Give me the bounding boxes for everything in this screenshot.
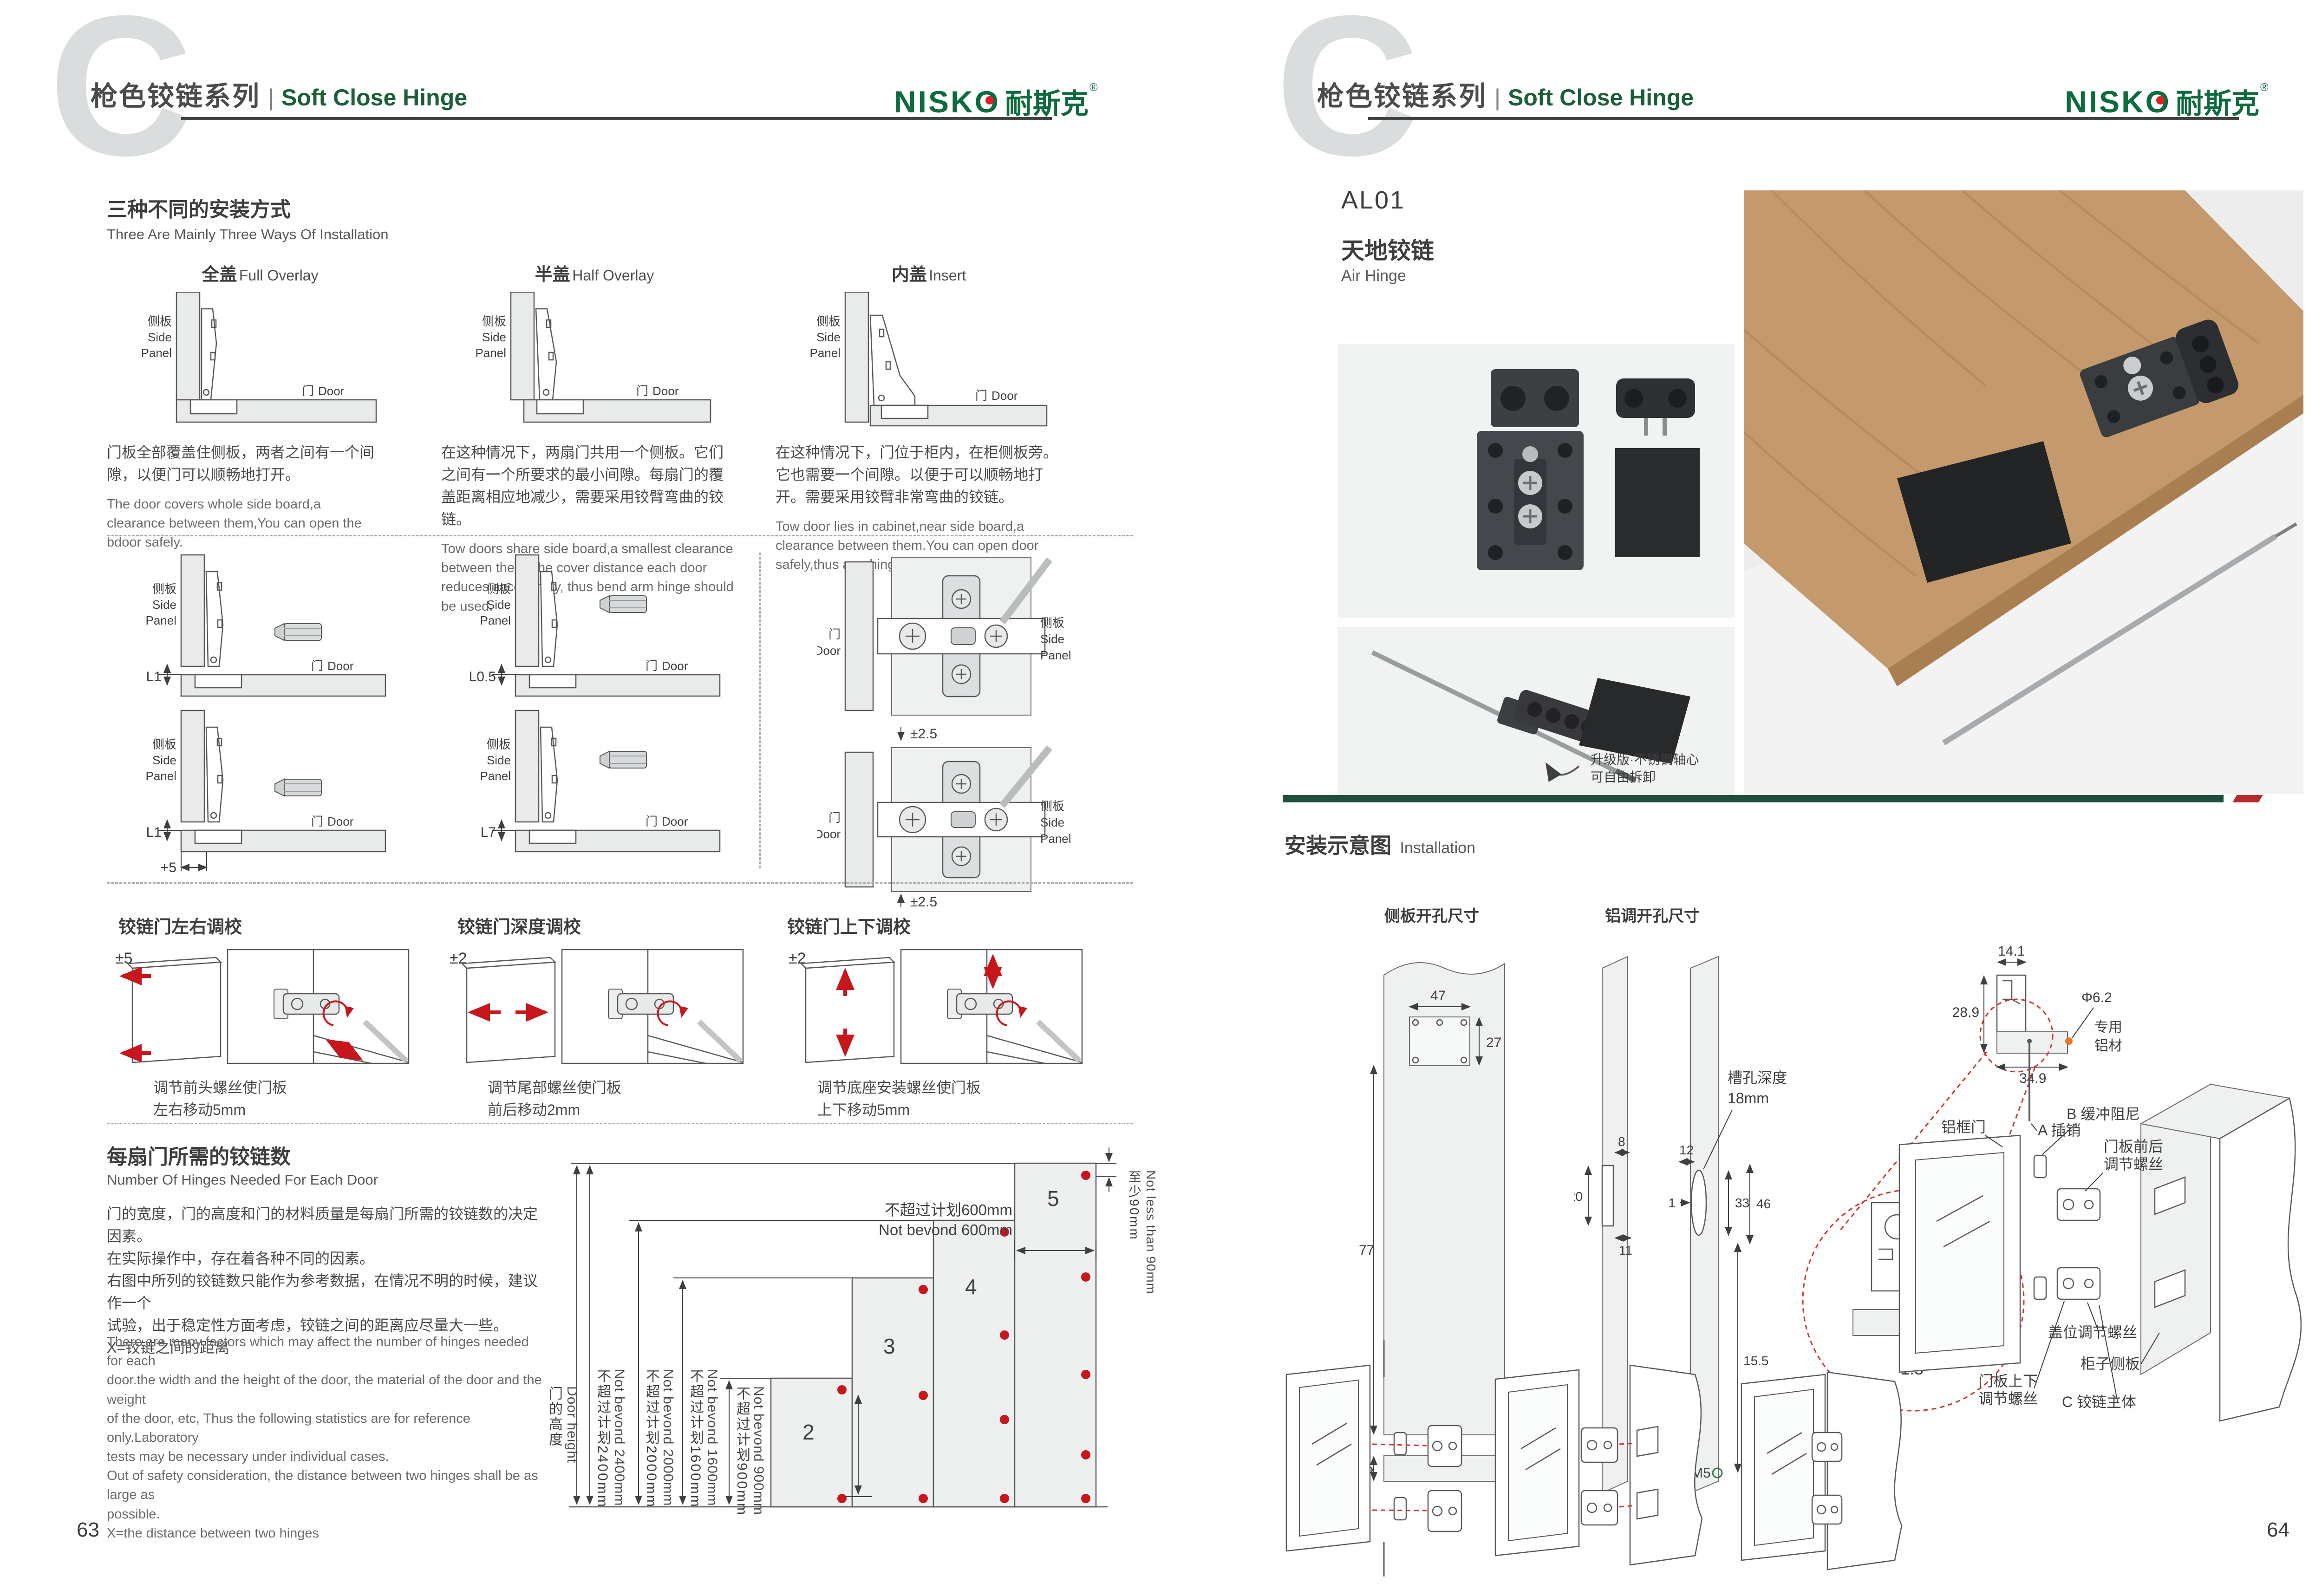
alu-label-1: 专用 xyxy=(2094,1020,2122,1035)
side-panel-label-en1: Side xyxy=(1040,632,1064,646)
en-line: tests may be necessary under individual … xyxy=(107,1447,548,1466)
brand-logo: NISKO 耐斯克 ® xyxy=(894,81,1098,122)
header-rule xyxy=(1368,117,2239,120)
side-panel-label-cn: 侧板 xyxy=(1040,799,1064,813)
dim-label: L1 xyxy=(146,669,162,684)
way-title-cn: 半盖 xyxy=(535,265,570,285)
section4-title-cn: 每扇门所需的铰链数 xyxy=(107,1140,291,1170)
slot-depth-label2: 18mm xyxy=(1728,1090,1769,1107)
logo-dot-icon xyxy=(985,96,994,104)
side-panel-label-en1: Side xyxy=(1040,815,1064,829)
page-left: C 枪色铰链系列 | Soft Close Hinge NISKO 耐斯克 ® … xyxy=(0,0,1168,1596)
door-label-en: Door xyxy=(318,384,345,398)
pm-bottom-label: ±2.5 xyxy=(910,894,937,910)
door-label-cn: 门 xyxy=(311,659,323,673)
adjust1-desc: 调节前头螺丝使门板 左右移动5mm xyxy=(153,1076,287,1121)
en-line: There are many factors which may affect … xyxy=(107,1333,548,1371)
mounting-plate-diagram-top: 门 Door 侧板 Side Panel xyxy=(817,553,1105,720)
assembly-step-1 xyxy=(1286,1340,1461,1576)
label-frame-door: 铝框门 xyxy=(1941,1119,1986,1135)
divider-2 xyxy=(107,882,1133,884)
logo-latin: NISKO xyxy=(894,84,1000,119)
adjust3-desc: 调节底座安装螺丝使门板 上下移动5mm xyxy=(817,1076,981,1121)
chart-limit-1600-en: Not bevond 1600mm xyxy=(705,1369,719,1506)
side-panel-label-en1: Side xyxy=(148,330,172,344)
chart-edge-cn: 至少90mm xyxy=(1128,1170,1141,1241)
side-panel-drilling-title: 侧板开孔尺寸 xyxy=(1384,903,1479,926)
installation-title: 安装示意图 Installation xyxy=(1285,829,1475,860)
way-desc-cn: 在这种情况下，门位于柜内，在柜侧板旁。它也需要一个间隙。以便于可以顺畅地打开。需… xyxy=(776,441,1068,508)
side-panel-label-cn: 侧板 xyxy=(487,737,511,751)
adjust1-desc-line2: 左右移动5mm xyxy=(153,1099,287,1121)
side-panel-label-en1: Side xyxy=(152,753,176,767)
dim-77: 77 xyxy=(1359,1243,1374,1258)
screwdriver-bit-icon xyxy=(275,624,321,640)
adjust2-diagram: ±2 xyxy=(446,943,752,1068)
side-panel-label-en2: Panel xyxy=(1040,648,1071,662)
divider-1 xyxy=(107,535,1133,536)
door-label-en: Door xyxy=(817,644,841,658)
photo-hinge-parts xyxy=(1337,344,1735,618)
side-panel-label-cn: 侧板 xyxy=(152,582,176,596)
dim-plus5: +5 xyxy=(161,860,176,875)
side-panel-label-en1: Side xyxy=(482,330,506,344)
dim-14_1: 14.1 xyxy=(1998,944,2025,959)
side-panel-label-en1: Side xyxy=(152,598,176,612)
side-panel-label-cn: 侧板 xyxy=(487,582,511,596)
screwdriver-bit-icon xyxy=(275,779,321,796)
dim-label: L0.5 xyxy=(469,669,496,684)
way-title-cn: 全盖 xyxy=(202,265,237,285)
section4-title-en: Number Of Hinges Needed For Each Door xyxy=(107,1172,378,1188)
pm-top-label: ±2.5 xyxy=(910,726,937,742)
logo-dot-icon xyxy=(2156,96,2165,104)
way-desc-en: The door covers whole side board,a clear… xyxy=(107,495,367,553)
photo-hinge-assembled: 升级版·不锈钢轴心 可自由拆卸 xyxy=(1337,627,1735,794)
clearance-diagram-L0.5: L0.5 侧板 Side Panel 门 Door xyxy=(446,550,743,704)
door-label-en: Door xyxy=(327,659,354,673)
door-3-count: 3 xyxy=(883,1334,895,1358)
photo-hinge-on-board xyxy=(1744,190,2303,794)
en-line: X=the distance between two hinges xyxy=(107,1524,548,1543)
section-divider-bar xyxy=(1283,795,2224,802)
clearance-diagram-L7: L7 侧板 Side Panel 门 Door xyxy=(446,706,743,878)
series-separator: | xyxy=(1494,84,1500,111)
dim-label: L7 xyxy=(481,825,496,840)
adjust3-desc-line1: 调节底座安装螺丝使门板 xyxy=(817,1076,981,1099)
door-2-count: 2 xyxy=(802,1420,815,1444)
label-ud-screw-1: 门板上下 xyxy=(1978,1373,2038,1389)
way-title: 半盖 Half Overlay xyxy=(441,260,748,286)
label-ud-screw-2: 调节螺丝 xyxy=(1978,1390,2038,1407)
side-panel-label-cn: 侧板 xyxy=(482,314,506,328)
way-title-en: Half Overlay xyxy=(572,267,654,284)
dim-47: 47 xyxy=(1430,988,1446,1003)
section4-desc-en: There are many factors which may affect … xyxy=(107,1333,548,1543)
section-divider-accent xyxy=(2232,795,2263,802)
label-a-pin: A 插销 xyxy=(2038,1122,2081,1139)
door-label-en: Door xyxy=(652,384,679,398)
logo-cn: 耐斯克 xyxy=(2176,81,2259,122)
chart-limit-900-en: Not bevond 900mm xyxy=(751,1386,765,1515)
label-fb-screw-2: 调节螺丝 xyxy=(2104,1156,2163,1173)
door-5-count: 5 xyxy=(1047,1186,1059,1211)
section1-title: 三种不同的安装方式 Three Are Mainly Three Ways Of… xyxy=(107,193,388,243)
label-b-damper: B 缓冲阻尼 xyxy=(2067,1106,2140,1122)
adjust2-desc-line2: 前后移动2mm xyxy=(488,1099,621,1121)
cn-line: 右图中所列的铰链数只能作为参考数据，在情况不明的时候，建议作一个 xyxy=(107,1270,548,1314)
screwdriver-bit-icon xyxy=(600,751,646,768)
door-label-cn: 门 xyxy=(646,814,658,828)
way-title: 全盖 Full Overlay xyxy=(107,260,413,286)
door-label-cn: 门 xyxy=(975,389,987,403)
chart-limit-1600-cn: 不超过计划1600mm xyxy=(688,1369,702,1508)
side-panel-label-en1: Side xyxy=(487,753,511,767)
section1-title-cn: 三种不同的安装方式 xyxy=(107,193,388,222)
dim-27: 27 xyxy=(1486,1035,1501,1050)
side-panel-label-en2: Panel xyxy=(141,346,172,360)
full-overlay-diagram: 侧板 Side Panel 门 Door xyxy=(107,292,404,427)
chart-width-limit-en: Not bevond 600mm xyxy=(834,1220,1012,1240)
divider-vertical xyxy=(759,553,761,868)
en-line: Out of safety consideration, the distanc… xyxy=(107,1466,548,1505)
series-title-cn: 枪色铰链系列 xyxy=(1317,74,1487,113)
en-line: possible. xyxy=(107,1505,548,1524)
page-right: C 枪色铰链系列 | Soft Close Hinge NISKO 耐斯克 ® … xyxy=(1168,0,2322,1596)
page-number-right: 64 xyxy=(2267,1518,2289,1542)
series-title-en: Soft Close Hinge xyxy=(1508,84,1694,111)
dim-1: 1 xyxy=(1668,1196,1676,1210)
side-panel-label-en2: Panel xyxy=(476,346,507,360)
chart-axis-en: Door height xyxy=(565,1386,579,1463)
section1-title-en: Three Are Mainly Three Ways Of Installat… xyxy=(107,226,388,243)
chart-axis-cn: 门的高度 xyxy=(547,1386,561,1447)
door-label-en: Door xyxy=(991,389,1018,403)
hinge-part-upper xyxy=(2057,1189,2100,1220)
install-way-full-overlay: 全盖 Full Overlay 侧板 Side Panel 门 Door 门板全… xyxy=(107,260,413,553)
cn-line: 门的宽度，门的高度和门的材料质量是每扇门所需的铰链数的决定因素。 xyxy=(107,1203,548,1247)
insert-diagram: 侧板 Side Panel 门 Door xyxy=(776,292,1073,427)
chart-limit-2000-en: Not bevond 2000mm xyxy=(661,1369,675,1506)
way-title-en: Insert xyxy=(929,267,966,284)
install-way-insert: 内盖 Insert 侧板 Side Panel 门 Door 在这种情况下，门位… xyxy=(776,260,1082,575)
door-label-cn: 门 xyxy=(311,814,323,828)
logo-registered-mark: ® xyxy=(1089,81,1098,94)
side-panel-label-en1: Side xyxy=(487,598,511,612)
dim-46: 46 xyxy=(1756,1197,1771,1211)
door-label-cn: 门 xyxy=(828,627,841,641)
adjust2-desc: 调节尾部螺丝使门板 前后移动2mm xyxy=(488,1076,621,1121)
page-header: 枪色铰链系列 | Soft Close Hinge xyxy=(91,74,467,113)
installation-title-cn: 安装示意图 xyxy=(1285,834,1391,858)
side-panel-label-en2: Panel xyxy=(480,769,511,783)
side-panel-label-en2: Panel xyxy=(1040,832,1071,846)
series-title-cn: 枪色铰链系列 xyxy=(91,74,261,113)
door-4-count: 4 xyxy=(965,1275,977,1299)
assembly-step-3 xyxy=(1741,1372,1902,1570)
en-line: door.the width and the height of the doo… xyxy=(107,1371,548,1409)
cn-line: 在实际操作中，存在着各种不同的因素。 xyxy=(107,1247,548,1270)
product-name-cn: 天地铰链 xyxy=(1341,232,1434,266)
dim-11: 11 xyxy=(1619,1243,1632,1257)
door-label-cn: 门 xyxy=(636,384,648,398)
side-panel-label-en2: Panel xyxy=(810,346,841,360)
adjust3-diagram: ±2 xyxy=(785,943,1091,1068)
way-title-en: Full Overlay xyxy=(239,267,319,284)
side-panel-label-cn: 侧板 xyxy=(1040,616,1064,630)
way-desc-cn: 门板全部覆盖住侧板，两者之间有一个间隙，以便门可以顺畅地打开。 xyxy=(107,441,395,486)
adjust1-diagram: ±5 xyxy=(111,943,418,1068)
dim-33: 33 xyxy=(1735,1196,1749,1210)
label-cover-screw: 盖位调节螺丝 xyxy=(2048,1324,2137,1341)
installation-title-en: Installation xyxy=(1400,839,1475,857)
logo-latin: NISKO xyxy=(2065,84,2171,119)
chart-limit-900-cn: 不超过计划900mm xyxy=(735,1386,749,1516)
dim-12: 12 xyxy=(1679,1143,1694,1157)
divider-3 xyxy=(107,1123,1133,1124)
door-label-en: Door xyxy=(327,814,354,828)
way-title-cn: 内盖 xyxy=(892,265,927,285)
label-fb-screw-1: 门板前后 xyxy=(2104,1138,2163,1155)
adjust2-title: 铰链门深度调校 xyxy=(457,912,581,938)
screwdriver-bit-icon xyxy=(600,596,646,612)
dim-label: L1 xyxy=(146,825,162,840)
hinge-part-lower xyxy=(2057,1268,2100,1299)
slot-depth-label1: 槽孔深度 xyxy=(1728,1069,1787,1086)
side-panel-label-cn: 侧板 xyxy=(152,737,176,751)
door-label-cn: 门 xyxy=(302,384,314,398)
chart-limit-2400-cn: 不超过计划2400mm xyxy=(595,1369,609,1508)
photo-note-line2: 可自由拆卸 xyxy=(1591,770,1656,784)
door-label-cn: 门 xyxy=(828,811,841,825)
logo-cn: 耐斯克 xyxy=(1005,81,1089,122)
page-number-left: 63 xyxy=(77,1518,99,1542)
door-label-en: Door xyxy=(662,659,688,673)
assembly-steps-diagram xyxy=(1277,1337,1955,1579)
dim-8: 8 xyxy=(1618,1134,1625,1149)
assembly-step-2 xyxy=(1495,1365,1702,1565)
side-panel-label-en2: Panel xyxy=(146,769,177,783)
logo-registered-mark: ® xyxy=(2260,81,2269,94)
adjust3-title: 铰链门上下调校 xyxy=(787,912,911,938)
side-panel-label-en1: Side xyxy=(816,330,841,344)
adjust3-desc-line2: 上下移动5mm xyxy=(817,1099,981,1121)
chart-width-limit-cn: 不超过计划600mm xyxy=(834,1200,1012,1220)
door-label-en: Door xyxy=(817,827,841,841)
clearance-diagram-L1: L1 侧板 Side Panel 门 Door xyxy=(111,550,409,704)
photo-note-line1: 升级版·不锈钢轴心 xyxy=(1591,752,1699,767)
dim-phi: Φ6.2 xyxy=(2081,990,2112,1005)
catalog-spread: C 枪色铰链系列 | Soft Close Hinge NISKO 耐斯克 ® … xyxy=(0,0,2322,1596)
door-4-hinges xyxy=(933,1220,1015,1507)
adjust2-desc-line1: 调节尾部螺丝使门板 xyxy=(488,1076,621,1099)
en-line: of the door, etc, Thus the following sta… xyxy=(107,1409,548,1447)
product-model: AL01 xyxy=(1341,186,1405,215)
side-panel-label-en2: Panel xyxy=(146,613,177,627)
dim-20: 20 xyxy=(1574,1189,1583,1204)
side-panel-label-en2: Panel xyxy=(480,613,511,627)
brand-logo: NISKO 耐斯克 ® xyxy=(2065,81,2269,122)
door-label-en: Door xyxy=(662,814,688,828)
dim-28_9: 28.9 xyxy=(1952,1005,1979,1020)
chart-limit-2000-cn: 不超过计划2000mm xyxy=(644,1369,658,1508)
door-label-cn: 门 xyxy=(646,659,658,673)
product-name-en: Air Hinge xyxy=(1341,267,1406,285)
side-panel-label-cn: 侧板 xyxy=(148,314,172,328)
alu-drilling-title: 铝调开孔尺寸 xyxy=(1605,903,1700,926)
label-c-body: C 铰链主体 xyxy=(2062,1394,2136,1410)
page-header: 枪色铰链系列 | Soft Close Hinge xyxy=(1317,74,1694,113)
way-desc-cn: 在这种情况下，两扇门共用一个侧板。它们之间有一个所要求的最小间隙。每扇门的覆盖距… xyxy=(441,441,734,530)
adjust1-desc-line1: 调节前头螺丝使门板 xyxy=(153,1076,287,1099)
series-separator: | xyxy=(268,84,274,111)
header-rule xyxy=(181,117,1052,120)
chart-width-limit: 不超过计划600mm Not bevond 600mm xyxy=(834,1200,1012,1240)
clearance-diagram-L1-plus5: L1 +5 侧板 Side Panel 门 Door xyxy=(111,706,409,878)
half-overlay-diagram: 侧板 Side Panel 门 Door xyxy=(441,292,738,427)
chart-edge-en: Not less than 90mm xyxy=(1144,1170,1157,1294)
adjust1-title: 铰链门左右调校 xyxy=(118,912,242,938)
chart-limit-2400-en: Not bevond 2400mm xyxy=(612,1369,626,1506)
side-panel-label-cn: 侧板 xyxy=(816,314,841,328)
series-title-en: Soft Close Hinge xyxy=(281,84,467,111)
way-title: 内盖 Insert xyxy=(776,260,1082,286)
